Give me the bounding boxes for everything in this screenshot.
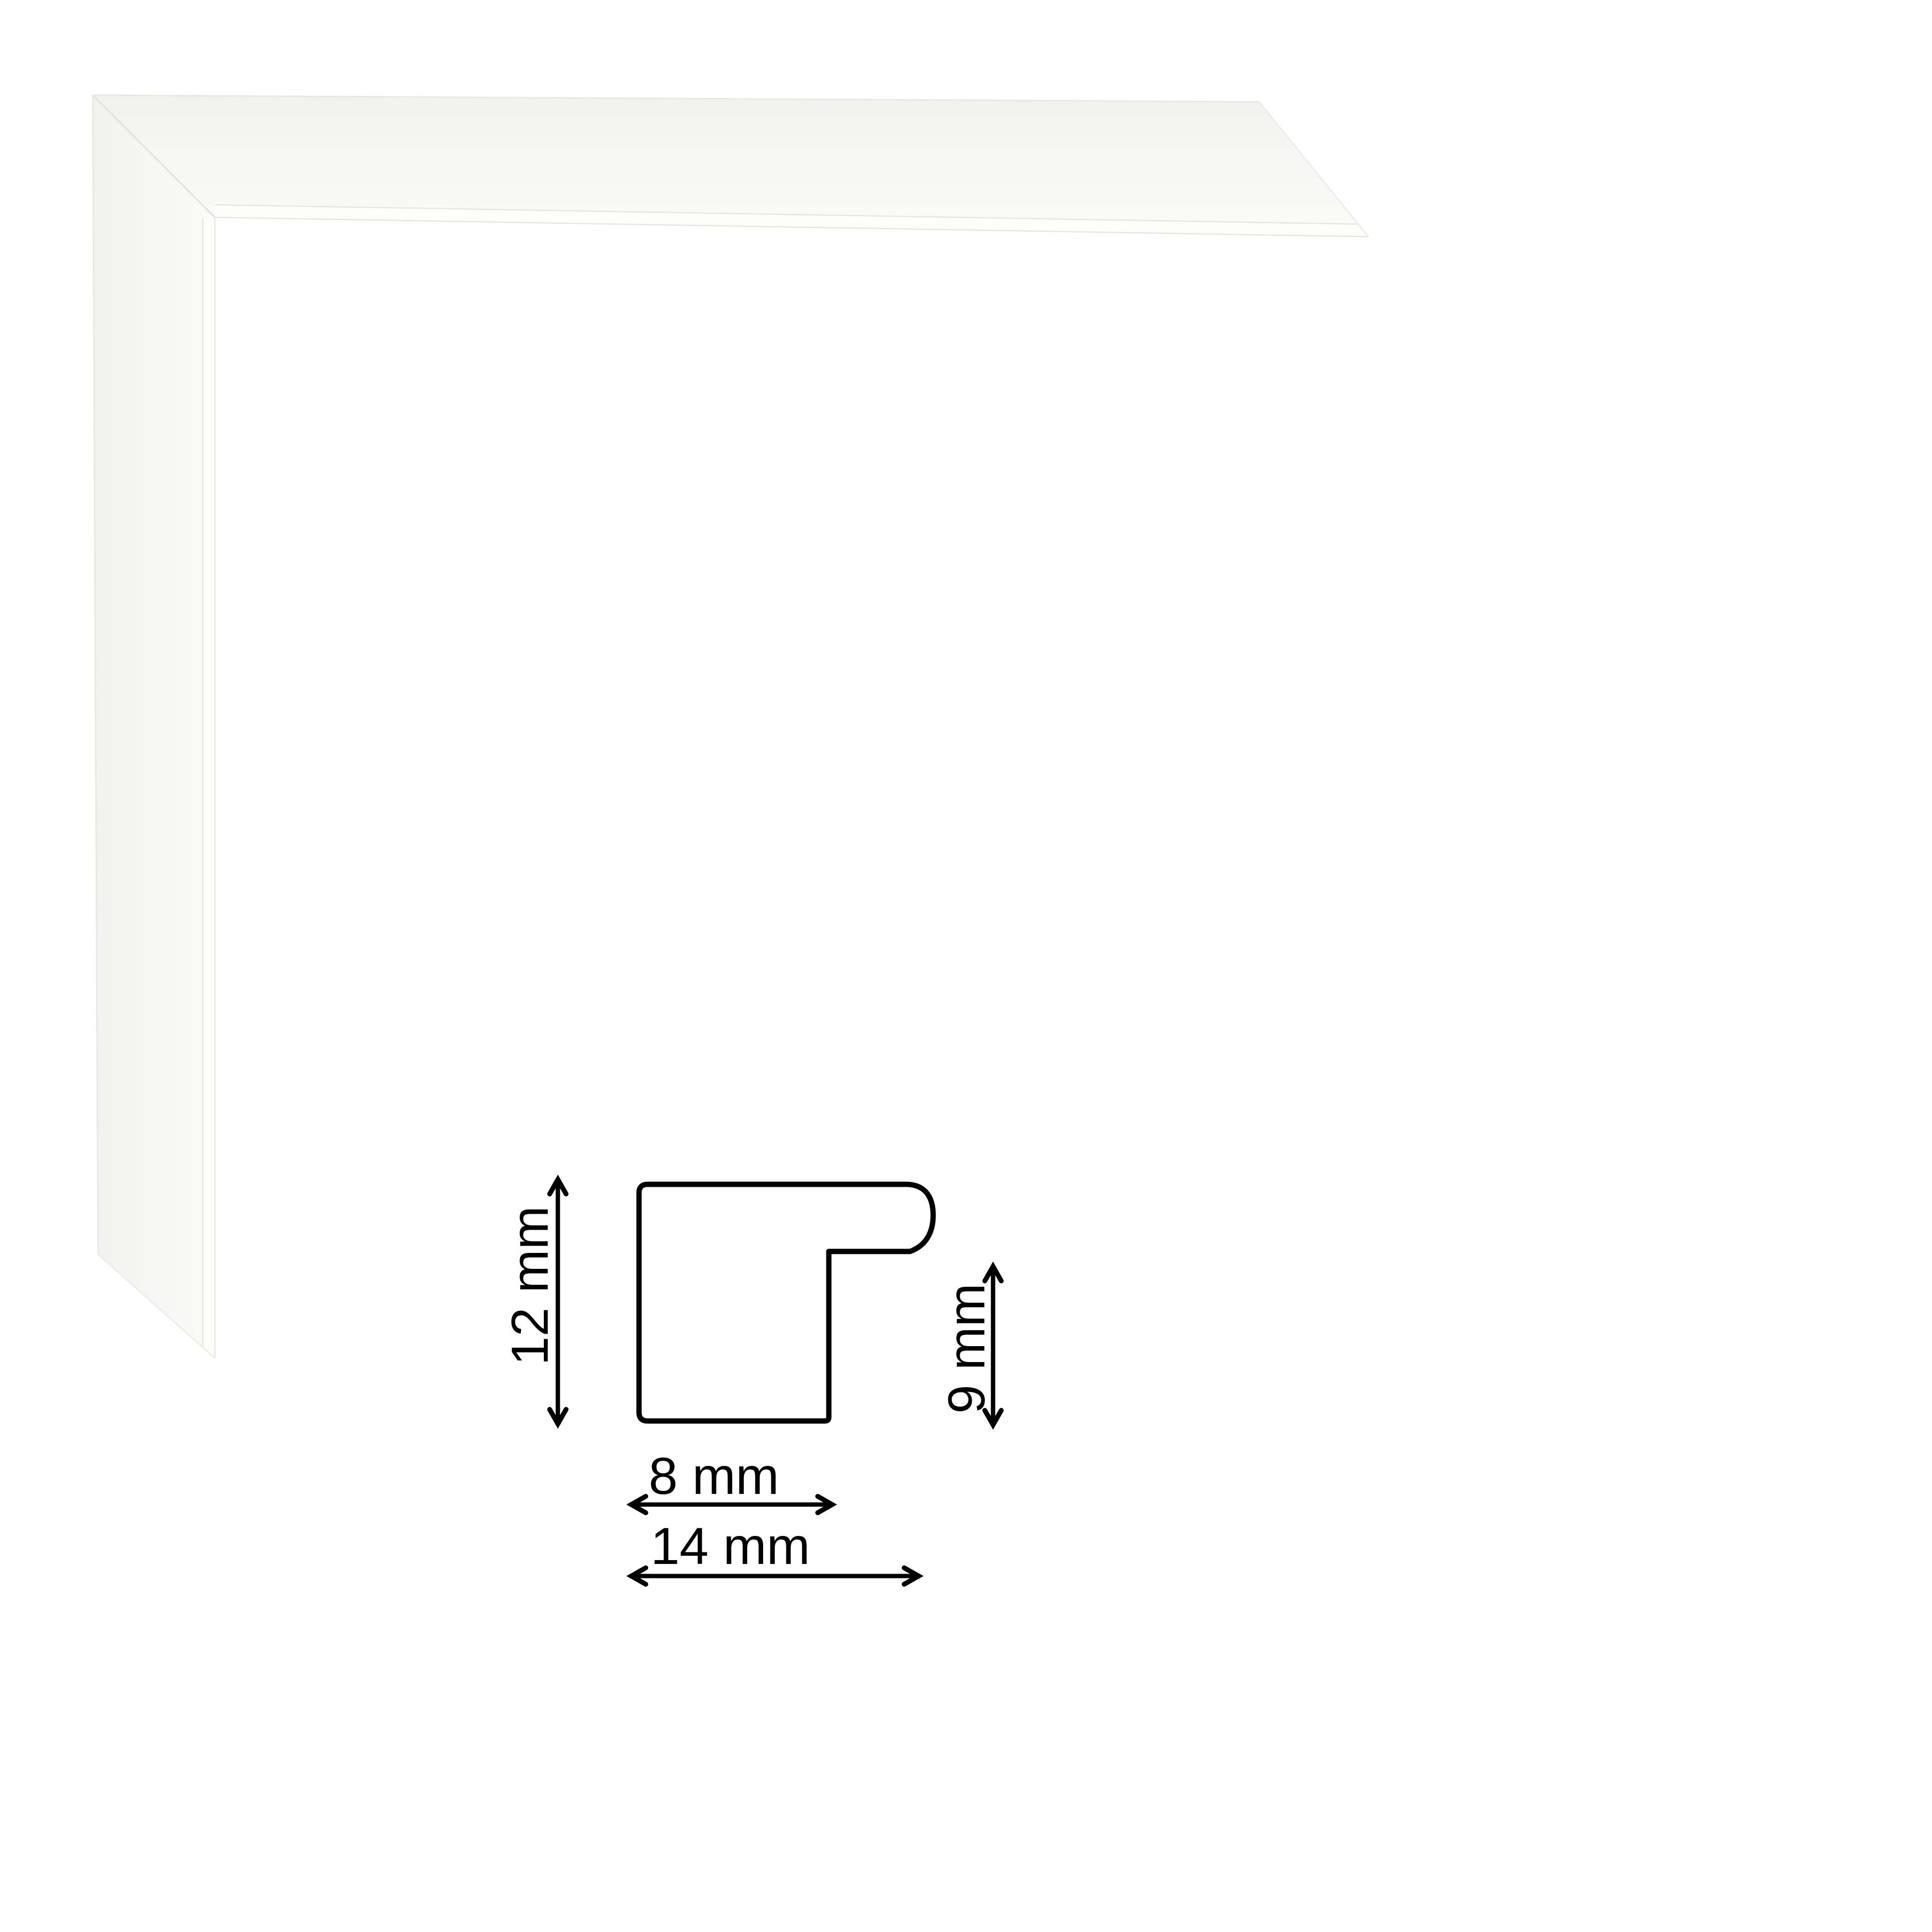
frame-left-rail-lip-highlight bbox=[203, 217, 215, 1358]
product-image-page: { "page": { "background": "#ffffff", "ki… bbox=[0, 0, 1932, 1932]
dim-label-14mm: 14 mm bbox=[651, 1517, 810, 1575]
dim-label-8mm: 8 mm bbox=[649, 1447, 779, 1505]
frame-left-rail bbox=[93, 95, 215, 1358]
background bbox=[0, 0, 1932, 1932]
dimension-rabbet-height: 9 mm bbox=[937, 1266, 1001, 1425]
product-image-canvas: 12 mm 9 mm 8 mm 14 mm bbox=[0, 0, 1932, 1932]
dim-label-12mm: 12 mm bbox=[500, 1206, 559, 1365]
dim-label-9mm: 9 mm bbox=[937, 1283, 995, 1414]
